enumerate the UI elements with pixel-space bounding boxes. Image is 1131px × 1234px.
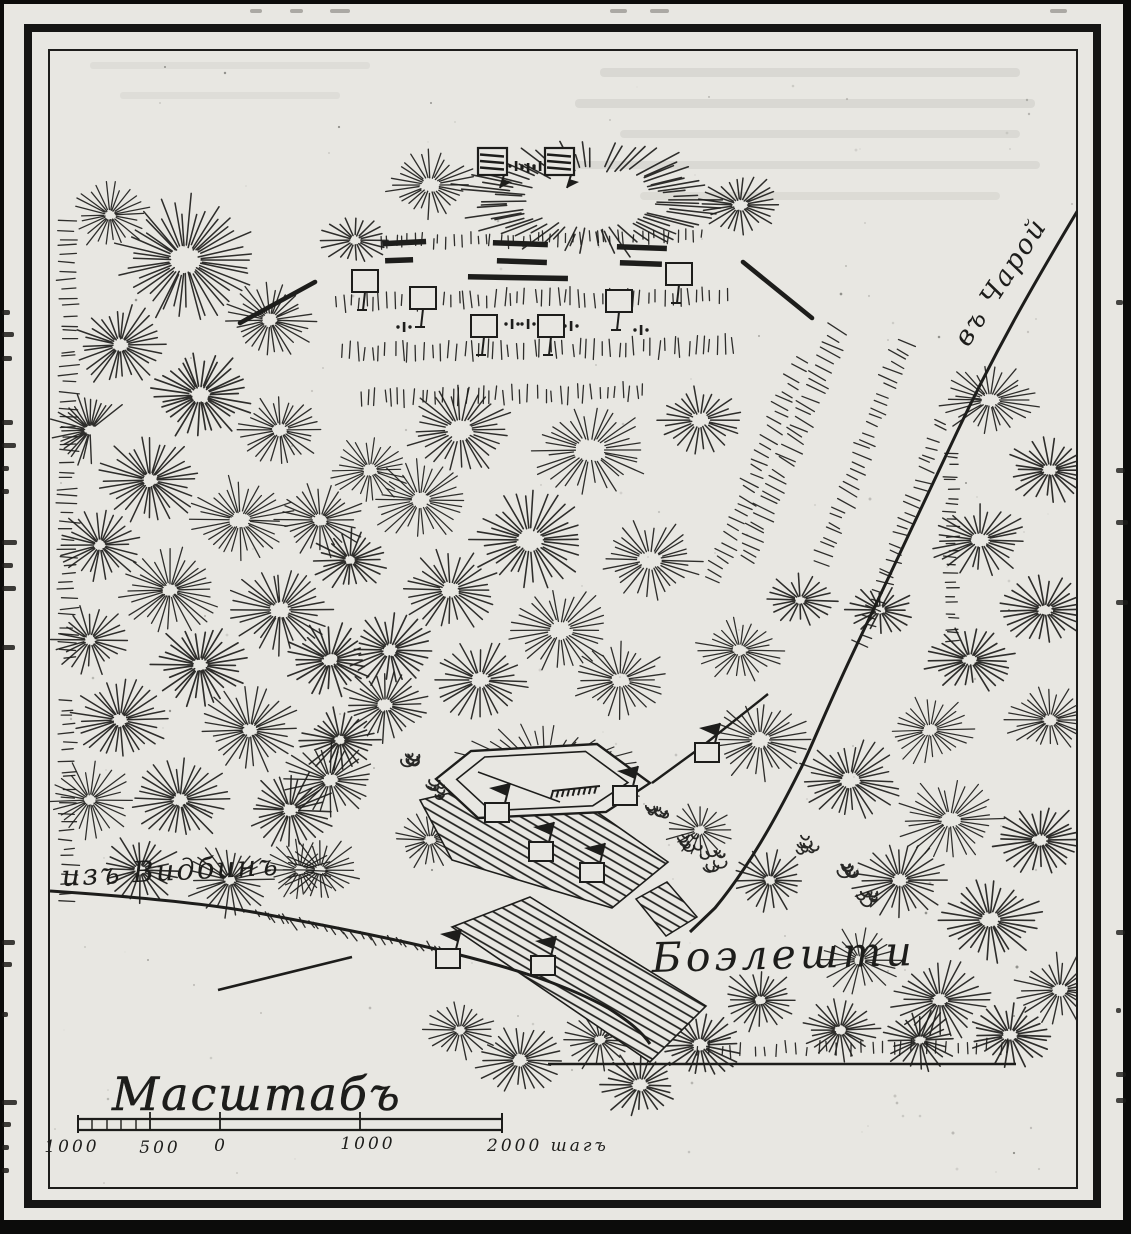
speck (1013, 1015, 1015, 1017)
speck (431, 869, 433, 871)
speck (1008, 580, 1011, 583)
speck (919, 1115, 922, 1118)
speck (690, 378, 692, 380)
margin-fragment-right (1116, 300, 1123, 305)
speck (252, 548, 254, 550)
speck (107, 1098, 110, 1101)
speck (210, 1057, 213, 1060)
speck (54, 1128, 56, 1130)
speck (868, 295, 870, 297)
speck (620, 492, 623, 495)
speck (236, 1172, 238, 1174)
speck (855, 149, 858, 152)
scale-tick-0: 0 (214, 1136, 228, 1156)
speck (103, 1182, 105, 1184)
speck (193, 984, 195, 986)
margin-fragment-left (2, 332, 14, 337)
scale-tick-1000-left: 1000 (44, 1137, 99, 1157)
speck (898, 602, 899, 603)
speck (418, 603, 419, 604)
margin-fragment-right (1116, 600, 1128, 605)
speck (540, 484, 541, 485)
speck (294, 1158, 295, 1159)
speck (70, 718, 72, 720)
speck (338, 126, 340, 128)
speck (622, 423, 625, 426)
speck (124, 951, 125, 952)
speck (901, 756, 902, 757)
speck (1027, 331, 1029, 333)
margin-fragment-top (250, 9, 262, 13)
speck (892, 322, 895, 325)
speck (1035, 318, 1037, 320)
margin-fragment-left (2, 356, 12, 361)
speck (1009, 148, 1011, 150)
speck (502, 698, 503, 699)
speck (159, 102, 161, 104)
speck (688, 1151, 691, 1154)
speck (84, 946, 86, 948)
speck (1016, 966, 1019, 969)
scale-tick-1000-right: 1000 (340, 1134, 395, 1154)
speck (864, 222, 866, 224)
speck (857, 868, 858, 869)
speck (859, 148, 860, 149)
speck (339, 713, 341, 715)
speck (92, 677, 95, 680)
scale-tick-2000: 2000 шагъ (486, 1136, 609, 1156)
speck (581, 585, 582, 586)
speck (853, 776, 854, 777)
margin-fragment-top (290, 9, 303, 13)
margin-fragment-left (2, 940, 15, 945)
speck (738, 629, 739, 630)
margin-fragment-top (610, 9, 627, 13)
speck (245, 185, 246, 186)
margin-fragment-right (1116, 468, 1125, 473)
speck (60, 482, 62, 484)
margin-fragment-left (2, 1145, 9, 1150)
speck (938, 336, 941, 339)
margin-fragment-left (2, 489, 9, 494)
speck (965, 482, 967, 484)
speck (571, 1069, 573, 1071)
margin-fragment-left (2, 962, 12, 967)
speck (840, 293, 843, 296)
margin-fragment-left (2, 586, 16, 591)
margin-fragment-right (1116, 930, 1125, 935)
speck (701, 238, 703, 240)
margin-fragment-left (2, 420, 13, 425)
speck (328, 152, 330, 154)
margin-fragment-top (650, 9, 669, 13)
speck (1071, 203, 1073, 205)
speck (539, 669, 542, 672)
speck (902, 1115, 905, 1118)
speck (636, 86, 637, 87)
speck (894, 1095, 897, 1098)
speck (311, 390, 313, 392)
speck (609, 119, 611, 121)
speck (887, 339, 889, 341)
speck (107, 1089, 109, 1091)
speck (63, 1029, 64, 1030)
speck (952, 1132, 955, 1135)
speck (427, 141, 428, 142)
speck (792, 85, 795, 88)
speck (995, 1171, 997, 1173)
speck (1047, 513, 1048, 514)
speck (595, 364, 597, 366)
speck (806, 798, 808, 800)
margin-fragment-left (2, 466, 9, 471)
speck (668, 844, 670, 846)
speck (164, 66, 166, 68)
speck (708, 96, 709, 97)
speck (852, 745, 854, 747)
speck (956, 1168, 959, 1171)
margin-fragment-right (1116, 1008, 1121, 1013)
speck (691, 1082, 694, 1085)
speck (845, 265, 847, 267)
speck (135, 299, 138, 302)
speck (846, 98, 848, 100)
speck (867, 1125, 869, 1127)
speck (714, 552, 716, 554)
speck (373, 767, 375, 769)
speck (497, 220, 500, 223)
speck (369, 1007, 372, 1010)
speck (851, 487, 852, 488)
speck (224, 72, 226, 74)
margin-fragment-right (1116, 520, 1128, 525)
speck (658, 511, 660, 513)
speck (1023, 531, 1025, 533)
speck (1035, 869, 1037, 871)
margin-fragment-left (2, 443, 16, 448)
speck (408, 246, 409, 247)
speck (1013, 1152, 1015, 1154)
speck (532, 1023, 535, 1026)
speck (896, 1102, 899, 1105)
speck (619, 676, 621, 678)
speck (517, 1015, 519, 1017)
scale-tick-500: 500 (139, 1138, 180, 1158)
scale-title: Масштабъ (111, 1067, 402, 1121)
speck (500, 268, 503, 271)
infantry-line-bar (385, 257, 413, 263)
speck (675, 754, 678, 757)
speck (1026, 99, 1028, 101)
speck (204, 615, 206, 617)
speck (602, 731, 603, 732)
margin-fragment-left (2, 645, 15, 650)
speck (405, 429, 407, 431)
scanned-book-page: изъ Видбинъ въ Чарой Боэлешти Масштабъ 1… (0, 0, 1131, 1234)
speck (758, 335, 760, 337)
margin-fragment-left (2, 1168, 9, 1173)
speck (471, 962, 472, 963)
speck (672, 878, 673, 879)
speck (1038, 1168, 1040, 1170)
speck (925, 912, 928, 915)
speck (976, 496, 977, 497)
village-label: Боэлешти (650, 927, 916, 982)
speck (105, 769, 106, 770)
speck (147, 959, 149, 961)
speck (1006, 132, 1009, 135)
margin-fragment-left (2, 1012, 8, 1017)
speck (322, 367, 324, 369)
margin-fragment-left (2, 563, 13, 568)
margin-fragment-top (330, 9, 350, 13)
speck (861, 1131, 862, 1132)
margin-fragment-top (1050, 9, 1067, 13)
speck (226, 634, 229, 637)
speck (869, 498, 872, 501)
speck (1028, 113, 1030, 115)
speck (260, 1012, 262, 1014)
speck (679, 764, 680, 765)
speck (694, 174, 695, 175)
speck (946, 566, 948, 568)
speck (615, 743, 617, 745)
speck (643, 803, 645, 805)
speck (1000, 825, 1002, 827)
speck (974, 678, 976, 680)
speck (814, 504, 816, 506)
speck (454, 121, 456, 123)
margin-fragment-left (2, 540, 17, 545)
margin-fragment-left (2, 1100, 17, 1105)
speck (1030, 1127, 1032, 1129)
margin-fragment-left (2, 1122, 11, 1127)
speck (190, 357, 192, 359)
speck (162, 727, 163, 728)
speck (598, 246, 600, 248)
speck (647, 556, 649, 558)
speck (430, 102, 432, 104)
battle-map-scan: изъ Видбинъ въ Чарой Боэлешти Масштабъ 1… (0, 0, 1131, 1234)
margin-fragment-right (1116, 1072, 1126, 1077)
speck (169, 710, 171, 712)
margin-fragment-right (1116, 1098, 1126, 1103)
margin-fragment-left (2, 310, 10, 315)
